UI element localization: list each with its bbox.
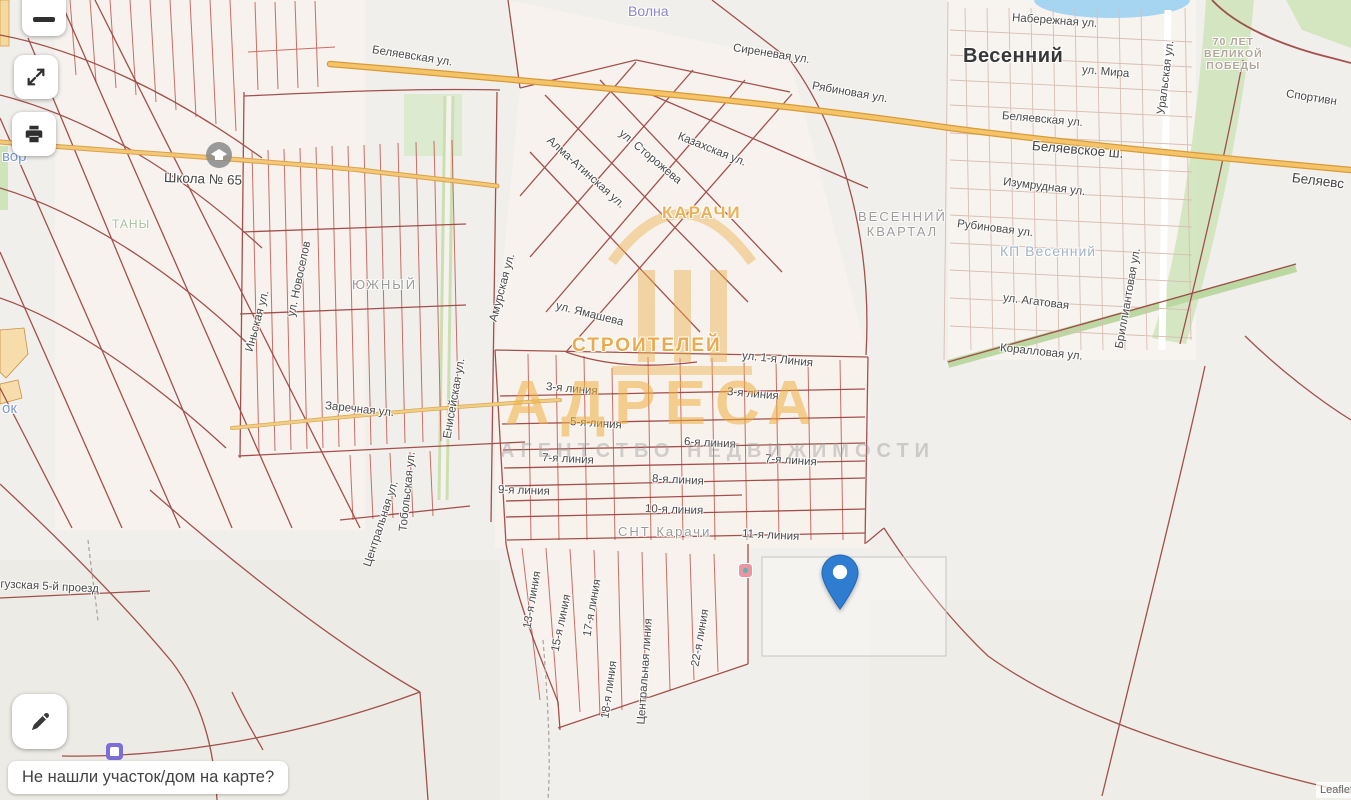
map-label: Казахская ул.: [676, 130, 748, 169]
map-label: Школа № 65: [164, 170, 243, 188]
map-label: 22-я линия: [689, 608, 712, 668]
map-label: Беляевс: [1291, 170, 1345, 192]
map-label: КАРАЧИ: [662, 203, 742, 223]
map-label: Амурская ул.: [488, 252, 519, 323]
map-label: Алма-Атинская ул.: [544, 135, 627, 212]
map-label: Тобольская ул.: [397, 451, 419, 532]
map-label: 9-я линия: [498, 484, 550, 499]
map-label: Енисейская ул.: [441, 357, 468, 439]
map-label: 11-я линия: [742, 528, 800, 544]
map-label: нгузская 5-й проезд: [0, 578, 99, 597]
map-pin[interactable]: [821, 553, 859, 612]
map-label: ул. Новоселов: [286, 240, 315, 318]
watermark-subtitle: АГЕНТСТВО НЕДВИЖИМОСТИ: [500, 440, 935, 463]
map-label: ул. Сторожева: [616, 128, 684, 188]
map-label: ул. Ямашева: [554, 300, 624, 330]
map-container[interactable]: ВолнаСиреневая ул.Рябиновая ул.Набережна…: [0, 0, 1351, 800]
map-label: Заречная ул.: [324, 400, 394, 420]
printer-icon: [23, 123, 45, 145]
map-label: 8-я линия: [652, 473, 704, 489]
map-label: 18-я линия: [599, 660, 620, 719]
map-label: Сиреневая ул.: [732, 42, 811, 67]
map-label: Иньская ул.: [244, 289, 273, 353]
map-label: Волна: [628, 3, 669, 19]
map-label: ул. Агатовая: [1002, 292, 1070, 313]
pencil-icon: [27, 709, 53, 735]
bus-stop-icon: [106, 743, 123, 760]
map-label: ВЕСЕННИЙ КВАРТАЛ: [858, 210, 947, 240]
map-label: Центральная линия: [635, 618, 656, 725]
map-label: Центральная ул.: [362, 479, 402, 568]
map-label: Спортивн: [1285, 88, 1338, 109]
leaflet-attribution[interactable]: Leaflet |: [1316, 782, 1351, 798]
map-label: 13-я линия: [521, 570, 544, 630]
map-label: 17-я линия: [581, 578, 604, 638]
map-label: 10-я линия: [645, 503, 704, 518]
map-label: Беляевское ш.: [1031, 138, 1124, 161]
edit-pencil-button[interactable]: [12, 694, 67, 749]
print-button[interactable]: [12, 112, 56, 156]
map-label: Беляевская ул.: [1001, 110, 1083, 130]
map-label: Рябиновая ул.: [811, 80, 889, 106]
map-label: Изумрудная ул.: [1002, 176, 1086, 199]
map-label: СТРОИТЕЛЕЙ: [572, 335, 722, 357]
map-label: Беляевская ул.: [371, 44, 453, 70]
pin-body: [822, 555, 858, 609]
map-label: СНТ Карачи: [618, 525, 711, 540]
map-label: Весенний: [963, 45, 1063, 68]
map-label: ТАНЫ: [112, 218, 150, 232]
map-label: ЮЖНЫЙ: [352, 278, 417, 293]
map-label: ул. Мира: [1081, 64, 1129, 81]
map-label: 70 ЛЕТ ВЕЛИКОЙ ПОБЕДЫ: [1204, 36, 1263, 72]
map-label: Рубиновая ул.: [956, 218, 1034, 240]
shop-poi-icon: [738, 563, 753, 578]
watermark-title: АДРЕСА: [505, 368, 821, 439]
not-found-prompt[interactable]: Не нашли участок/дом на карте?: [8, 761, 288, 794]
map-label: Уральская ул.: [1155, 40, 1177, 116]
map-label: КП Весенний: [1000, 243, 1096, 259]
map-label: ок: [2, 400, 17, 417]
fullscreen-button[interactable]: [14, 55, 58, 99]
map-label: Набережная ул.: [1012, 12, 1098, 31]
minus-icon: [33, 17, 55, 22]
map-label: Бриллиантовая ул.: [1113, 247, 1144, 349]
map-label: Коралловая ул.: [999, 342, 1083, 364]
zoom-out-button[interactable]: [22, 0, 66, 36]
fullscreen-expand-icon: [25, 66, 47, 88]
map-label: 15-я линия: [550, 593, 575, 653]
